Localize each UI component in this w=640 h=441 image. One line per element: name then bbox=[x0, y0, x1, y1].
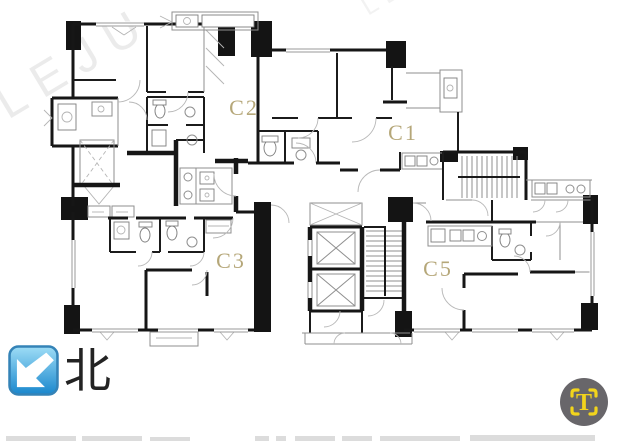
logo-letter: T bbox=[576, 390, 592, 416]
logo-icon: T bbox=[559, 377, 609, 427]
arrow-southwest-icon bbox=[8, 345, 59, 396]
unit-labels: C2 C1 C3 C5 bbox=[216, 95, 453, 281]
watermark-text: LEJU bbox=[0, 0, 162, 129]
staircase-center bbox=[364, 222, 404, 316]
floor-plan-image: LEJU LEJU bbox=[0, 0, 640, 441]
unit-c3 bbox=[73, 212, 254, 346]
unit-c1 bbox=[258, 50, 462, 192]
watermark-text-fragment: LEJU bbox=[356, 0, 453, 21]
unit-label-c1: C1 bbox=[388, 120, 418, 145]
north-label: 北 bbox=[64, 345, 111, 396]
bottom-crop-strip bbox=[6, 435, 595, 441]
right-wing-rooms bbox=[426, 152, 592, 305]
north-indicator: 北 bbox=[8, 345, 111, 396]
corridor bbox=[214, 158, 340, 223]
unit-label-c5: C5 bbox=[423, 256, 453, 281]
unit-label-c3: C3 bbox=[216, 248, 246, 273]
brand-logo: T bbox=[559, 377, 609, 427]
elevator-core bbox=[302, 203, 410, 333]
unit-label-c2: C2 bbox=[229, 95, 259, 120]
